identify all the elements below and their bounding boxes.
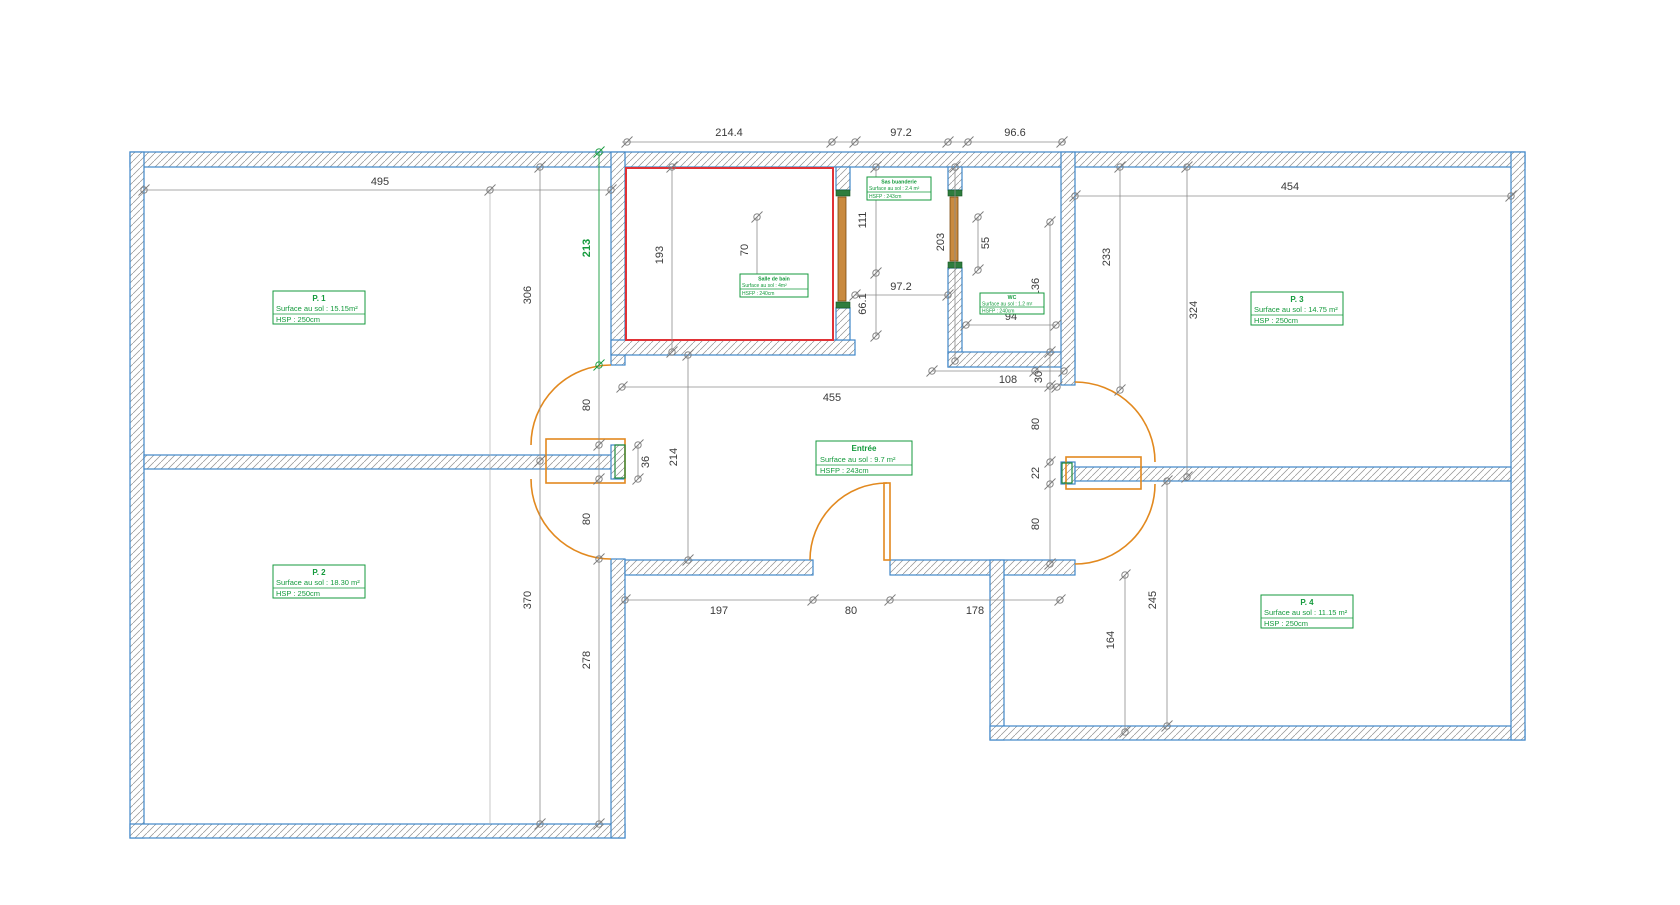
dim-label: 193: [654, 246, 666, 264]
dim-label: 36: [640, 456, 652, 468]
wall-entree-east-stub: [1061, 462, 1075, 484]
door-swing-arc-right-top: [1075, 382, 1155, 462]
wall-entree-bottom-left: [625, 560, 813, 575]
dim-label: 80: [845, 605, 857, 617]
dim-label: 245: [1147, 591, 1159, 609]
bathroom-door-jamb-top: [836, 190, 850, 196]
wall-entree-east-upper: [1061, 152, 1075, 385]
dim-label: 233: [1101, 248, 1113, 266]
dimension-labels-layer: 214.4 97.2 96.6 495 454 306 370 213 278 …: [371, 127, 1299, 669]
wall-bathroom-east-a: [836, 167, 850, 190]
room-surface: Surface au sol : 15.15m²: [276, 304, 358, 313]
room-ceiling: HSFP : 240cm: [982, 309, 1014, 315]
dim-label: 324: [1188, 301, 1200, 319]
room-label-p1: P. 1 Surface au sol : 15.15m² HSP : 250c…: [273, 291, 365, 324]
dim-label: 108: [999, 374, 1017, 386]
dim-label: 96.6: [1004, 127, 1025, 139]
room-ceiling: HSFP : 240cm: [742, 291, 774, 297]
dim-label: 306: [522, 286, 534, 304]
dim-label: 80: [581, 513, 593, 525]
wall-divider-p1-p2: [144, 455, 612, 469]
dim-label-green: 213: [581, 239, 593, 257]
room-name: P. 2: [312, 568, 326, 577]
wall-bottom-left-block: [130, 824, 625, 838]
dim-label: 197: [710, 605, 728, 617]
room-surface: Surface au sol : 9.7 m²: [820, 455, 896, 464]
room-ceiling: HSP : 250cm: [1264, 619, 1308, 628]
wall-wc-bottom: [948, 352, 1075, 367]
wc-door-leaf: [950, 197, 958, 261]
door-swing-arc-right-bottom: [1075, 484, 1155, 564]
entrance-door-leaf: [884, 483, 890, 560]
room-ceiling: HSP : 250cm: [1254, 316, 1298, 325]
wall-bottom-right-block: [990, 726, 1525, 740]
bathroom-door-jamb-bottom: [836, 302, 850, 308]
room-label-sas-buanderie: Sas buanderie Surface au sol : 2.4 m² HS…: [867, 177, 931, 200]
room-ceiling: HSFP : 243cm: [820, 466, 869, 475]
wall-p4-west: [990, 560, 1004, 740]
dim-label: 80: [1030, 518, 1042, 530]
dim-label: 164: [1105, 631, 1117, 649]
dim-label: 370: [522, 591, 534, 609]
dim-label: 111: [857, 212, 869, 229]
room-name: Sas buanderie: [881, 180, 917, 186]
room-name: Salle de bain: [758, 277, 790, 283]
dim-label: 214: [668, 448, 680, 466]
room-ceiling: HSP : 250cm: [276, 589, 320, 598]
room-ceiling: HSFP : 243cm: [869, 194, 901, 200]
dim-label: 97.2: [890, 127, 911, 139]
room-name: P. 1: [312, 294, 326, 303]
dim-label: 455: [823, 392, 841, 404]
wall-right: [1511, 152, 1525, 740]
room-surface: Surface au sol : 14.75 m²: [1254, 305, 1338, 314]
dim-label: 30: [1033, 371, 1045, 383]
room-name: Entrée: [852, 444, 877, 453]
dim-label: 495: [371, 176, 389, 188]
room-label-entree: Entrée Surface au sol : 9.7 m² HSFP : 24…: [816, 441, 912, 475]
dim-label: 22: [1030, 467, 1042, 479]
room-label-p3: P. 3 Surface au sol : 14.75 m² HSP : 250…: [1251, 292, 1343, 325]
room-name: P. 3: [1290, 295, 1304, 304]
dim-label: 203: [935, 233, 947, 251]
wall-top: [130, 152, 1525, 167]
dim-label: 178: [966, 605, 984, 617]
room-label-p4: P. 4 Surface au sol : 11.15 m² HSP : 250…: [1261, 595, 1353, 628]
room-label-salle-de-bain: Salle de bain Surface au sol : 4m² HSFP …: [740, 274, 808, 297]
room-surface: Surface au sol : 11.15 m²: [1264, 608, 1348, 617]
dim-label: 454: [1281, 181, 1299, 193]
floor-plan-page: 214.4 97.2 96.6 495 454 306 370 213 278 …: [0, 0, 1680, 905]
wall-entree-west-stub: [611, 445, 625, 479]
dim-label: 97.2: [890, 281, 911, 293]
dim-label: 70: [739, 244, 751, 256]
room-surface: Surface au sol : 18.30 m²: [276, 578, 360, 587]
room-surface: Surface au sol : 1.2 m²: [982, 302, 1033, 308]
room-label-wc: WC Surface au sol : 1.2 m² HSFP : 240cm: [980, 293, 1044, 315]
wall-entree-west-lower: [611, 559, 625, 838]
wall-bathroom-bottom: [611, 340, 855, 355]
floor-plan-drawing: 214.4 97.2 96.6 495 454 306 370 213 278 …: [0, 0, 1680, 905]
wall-bathroom-east-b: [836, 308, 850, 340]
room-surface: Surface au sol : 2.4 m²: [869, 186, 920, 192]
room-name: P. 4: [1300, 598, 1314, 607]
dim-label: 80: [581, 399, 593, 411]
wall-left: [130, 152, 144, 838]
entrance-door-swing-arc: [810, 483, 887, 560]
room-ceiling: HSP : 250cm: [276, 315, 320, 324]
dim-label: 80: [1030, 418, 1042, 430]
dim-label: 66.1: [857, 293, 869, 314]
dim-label: 214.4: [715, 127, 743, 139]
dim-label: 55: [980, 237, 992, 249]
room-surface: Surface au sol : 4m²: [742, 283, 787, 289]
dim-label: 278: [581, 651, 593, 669]
room-label-p2: P. 2 Surface au sol : 18.30 m² HSP : 250…: [273, 565, 365, 598]
room-name: WC: [1008, 295, 1017, 301]
wall-entree-west-upper: [611, 152, 625, 365]
walls-layer: [130, 152, 1525, 838]
bathroom-door-leaf: [838, 197, 846, 301]
